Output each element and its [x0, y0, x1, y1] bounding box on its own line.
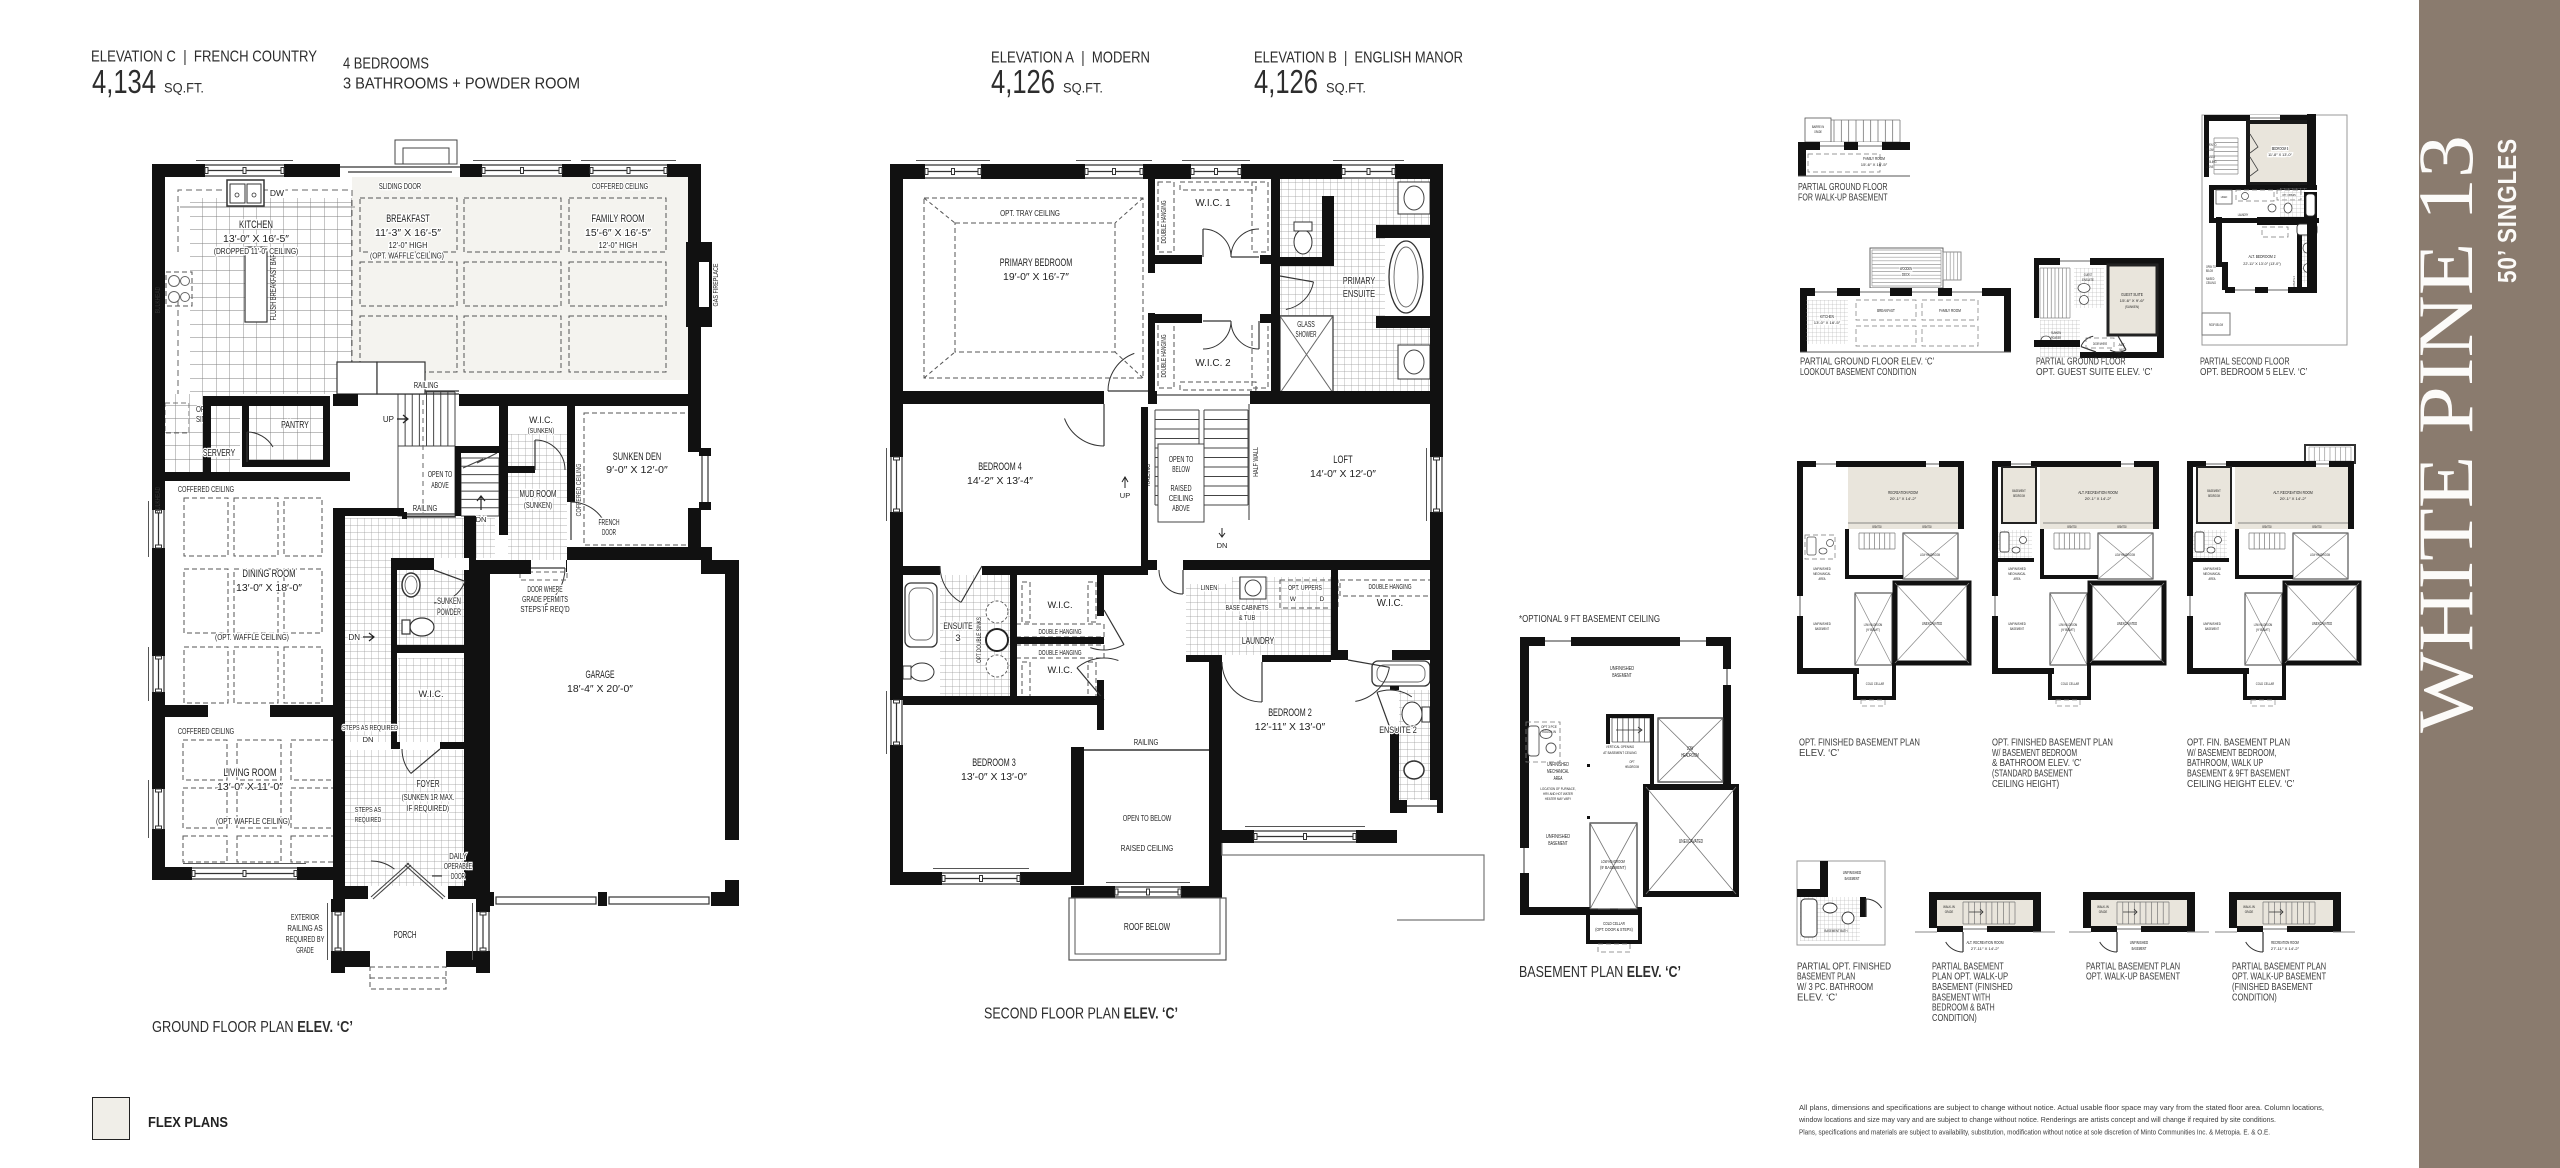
svg-text:& TUB: & TUB [1239, 613, 1256, 622]
svg-text:DW: DW [270, 188, 284, 198]
svg-text:FOYER: FOYER [416, 778, 439, 790]
svg-text:18′-4″ X 20′-0″: 18′-4″ X 20′-0″ [567, 684, 633, 695]
svg-text:SECOND FLOOR PLAN ELEV. ‘C’: SECOND FLOOR PLAN ELEV. ‘C’ [984, 1006, 1178, 1023]
svg-text:LAUNDRY: LAUNDRY [2238, 213, 2249, 217]
svg-text:RAILING AS: RAILING AS [287, 924, 322, 933]
svg-text:BASEMENT: BASEMENT [2010, 626, 2024, 631]
svg-text:13′-0″ X 13′-0″: 13′-0″ X 13′-0″ [961, 772, 1027, 783]
svg-text:UNFINISHED: UNFINISHED [1843, 870, 1862, 875]
svg-text:ALT. RECREATION ROOM: ALT. RECREATION ROOM [1967, 940, 2004, 945]
svg-text:DOUBLE HANGING: DOUBLE HANGING [1161, 200, 1168, 243]
svg-text:UNFINISHED: UNFINISHED [1547, 762, 1569, 768]
svg-text:ALT. BEDROOM 2: ALT. BEDROOM 2 [2248, 254, 2276, 259]
svg-text:COLD CELLAR: COLD CELLAR [1866, 682, 1885, 686]
svg-text:HEADROOM: HEADROOM [1625, 764, 1639, 769]
svg-text:FOR WALK-UP BASEMENT: FOR WALK-UP BASEMENT [1798, 192, 1888, 203]
svg-text:GLASS: GLASS [1297, 320, 1315, 329]
svg-text:BASEMENT PLAN ELEV. ‘C’: BASEMENT PLAN ELEV. ‘C’ [1519, 964, 1681, 981]
svg-text:DECK: DECK [1902, 272, 1910, 277]
svg-text:WALK-IN: WALK-IN [2243, 905, 2255, 909]
svg-text:W.I.C.: W.I.C. [1047, 665, 1072, 676]
svg-text:POWDER: POWDER [437, 607, 461, 617]
svg-text:CEILING: CEILING [1169, 494, 1194, 503]
svg-text:DN: DN [348, 633, 360, 642]
svg-text:20′-1″ X 14′-2″: 20′-1″ X 14′-2″ [2085, 496, 2112, 501]
svg-text:COLD CELLAR: COLD CELLAR [1603, 921, 1625, 926]
svg-text:LINEN: LINEN [1201, 583, 1218, 592]
svg-text:BASEMENT: BASEMENT [2012, 489, 2026, 493]
svg-text:LOW HEADROOM: LOW HEADROOM [1601, 859, 1625, 864]
svg-text:ENSUITE 2: ENSUITE 2 [1379, 725, 1417, 736]
svg-text:BSMT30: BSMT30 [2262, 525, 2271, 529]
svg-text:GUEST: GUEST [2084, 273, 2093, 277]
svg-text:BELOW: BELOW [2206, 148, 2214, 152]
svg-text:*OPTIONAL 9 FT BASEMENT CEILIN: *OPTIONAL 9 FT BASEMENT CEILING [1519, 614, 1660, 625]
svg-text:SQ.FT.: SQ.FT. [164, 81, 204, 96]
svg-text:BEDROOM: BEDROOM [2208, 494, 2220, 498]
svg-text:HEATER MAY VARY: HEATER MAY VARY [1545, 796, 1572, 801]
svg-text:FLEX PLANS: FLEX PLANS [148, 1114, 228, 1131]
svg-text:LOW HEADROOM: LOW HEADROOM [2310, 553, 2330, 557]
svg-text:BASEMENT: BASEMENT [2205, 626, 2219, 631]
svg-text:RAISED: RAISED [2206, 155, 2215, 159]
svg-text:AREA: AREA [1554, 776, 1563, 782]
svg-text:BSMT30: BSMT30 [2067, 525, 2076, 529]
svg-text:DOOR WHERE: DOOR WHERE [2093, 342, 2107, 346]
svg-text:HEADROOM: HEADROOM [1681, 753, 1699, 759]
svg-text:LINEN: LINEN [2221, 195, 2228, 199]
svg-text:(SUNKEN): (SUNKEN) [528, 426, 555, 435]
svg-text:KITCHEN: KITCHEN [1820, 314, 1834, 319]
svg-text:EXTERIOR: EXTERIOR [291, 913, 319, 922]
svg-text:DOUBLE HANGING: DOUBLE HANGING [1368, 584, 1411, 591]
svg-text:OPEN TO: OPEN TO [1169, 455, 1194, 464]
svg-text:GROUND FLOOR PLAN ELEV. ‘C’: GROUND FLOOR PLAN ELEV. ‘C’ [152, 1019, 353, 1036]
svg-text:DN: DN [363, 735, 374, 744]
svg-text:AREA: AREA [2209, 576, 2216, 581]
svg-text:13′-0″ X 16′-5″: 13′-0″ X 16′-5″ [1814, 320, 1841, 325]
svg-text:W.I.C. 1: W.I.C. 1 [1195, 198, 1231, 209]
svg-text:REQUIRED BY: REQUIRED BY [286, 935, 325, 944]
svg-text:ROOF BELOW: ROOF BELOW [2209, 323, 2223, 327]
svg-text:(OPT. DOOR & STEPS): (OPT. DOOR & STEPS) [1595, 927, 1633, 932]
svg-text:DN: DN [476, 515, 487, 524]
svg-text:BEDROOM 5: BEDROOM 5 [2272, 146, 2289, 151]
svg-text:ABOVE: ABOVE [2206, 165, 2214, 169]
svg-text:20′-1″ X 14′-2″: 20′-1″ X 14′-2″ [1890, 496, 1917, 501]
svg-text:RECREATION ROOM: RECREATION ROOM [1888, 490, 1918, 495]
svg-text:WALK-IN: WALK-IN [2097, 905, 2109, 909]
svg-text:15′-6″ X 9′-6″: 15′-6″ X 9′-6″ [2120, 298, 2145, 303]
svg-text:LIVING ROOM: LIVING ROOM [223, 767, 276, 779]
svg-text:BSMT30: BSMT30 [2117, 525, 2126, 529]
svg-text:BEDROOM 2: BEDROOM 2 [1268, 707, 1312, 719]
svg-text:27′-11″ X 14′-2″: 27′-11″ X 14′-2″ [2271, 946, 2300, 951]
svg-text:(OPT. WAFFLE CEILING): (OPT. WAFFLE CEILING) [216, 817, 290, 826]
svg-text:GRADE: GRADE [2099, 910, 2108, 914]
svg-text:Plans, specifications and mate: Plans, specifications and materials are … [1799, 1127, 2270, 1136]
svg-text:W.I.C.: W.I.C. [1377, 598, 1403, 609]
svg-text:ENSUITE 2: ENSUITE 2 [2292, 276, 2296, 288]
svg-text:4,126: 4,126 [1254, 63, 1318, 100]
svg-text:RECREATION ROOM: RECREATION ROOM [2271, 940, 2299, 945]
svg-text:27′-11″ X 14′-2″: 27′-11″ X 14′-2″ [1971, 946, 2000, 951]
svg-text:STEPS AS: STEPS AS [355, 805, 381, 814]
svg-text:All plans, dimensions and spec: All plans, dimensions and specifications… [1799, 1103, 2324, 1112]
svg-text:BEDROOM 3: BEDROOM 3 [972, 757, 1016, 769]
svg-text:SUNKEN: SUNKEN [437, 596, 461, 606]
svg-text:9′-0″ X 12′-0″: 9′-0″ X 12′-0″ [606, 465, 668, 476]
svg-text:GRADE: GRADE [1814, 130, 1822, 134]
svg-text:AT BASEMENT CEILING: AT BASEMENT CEILING [1603, 750, 1636, 755]
svg-text:UNFINISHED: UNFINISHED [1610, 666, 1634, 672]
svg-text:W.I.C.: W.I.C. [529, 415, 553, 425]
svg-text:BEDROOM 4: BEDROOM 4 [978, 461, 1022, 473]
svg-text:15′-6″ X 16′-5″: 15′-6″ X 16′-5″ [585, 228, 651, 239]
svg-text:UNEXCAVATED: UNEXCAVATED [1922, 621, 1942, 626]
svg-text:11′-8″ X 13′-0″: 11′-8″ X 13′-0″ [2268, 153, 2293, 157]
svg-text:14′-2″ X 13′-4″: 14′-2″ X 13′-4″ [967, 476, 1033, 487]
svg-text:W.I.C. 2: W.I.C. 2 [1195, 358, 1231, 369]
svg-text:(DROPPED 11′-0″ CEILING): (DROPPED 11′-0″ CEILING) [214, 247, 299, 256]
svg-text:PORCH: PORCH [393, 929, 416, 941]
svg-text:BELOW: BELOW [2206, 269, 2213, 273]
svg-text:OPEN TO: OPEN TO [428, 470, 453, 479]
svg-text:50’ SINGLES: 50’ SINGLES [2492, 138, 2522, 283]
svg-text:DINING ROOM: DINING ROOM [242, 568, 295, 580]
svg-text:FAMILY ROOM: FAMILY ROOM [591, 213, 644, 225]
svg-text:BASEMENT BATH: BASEMENT BATH [1825, 928, 1848, 933]
svg-text:OPT. WALK-UP BASEMENT: OPT. WALK-UP BASEMENT [2086, 972, 2180, 983]
svg-text:ELEV. ‘C’: ELEV. ‘C’ [1799, 748, 1839, 759]
svg-text:12′-0″ HIGH: 12′-0″ HIGH [389, 241, 428, 250]
svg-text:(SUNKEN 1R MAX.: (SUNKEN 1R MAX. [402, 793, 455, 802]
svg-text:LOOKOUT BASEMENT CONDITION: LOOKOUT BASEMENT CONDITION [1800, 367, 1916, 378]
svg-text:SERVERY: SERVERY [203, 447, 235, 459]
svg-text:DOUBLE HANGING: DOUBLE HANGING [1161, 334, 1168, 377]
svg-text:COLD CELLAR: COLD CELLAR [2061, 682, 2080, 686]
svg-text:RAISED: RAISED [1170, 484, 1191, 493]
svg-text:MECHANICAL: MECHANICAL [1547, 769, 1569, 775]
svg-text:W.I.C.: W.I.C. [1047, 600, 1072, 611]
svg-text:UNEXCAVATED: UNEXCAVATED [1679, 839, 1703, 845]
svg-text:12′-0″ HIGH: 12′-0″ HIGH [599, 241, 638, 250]
svg-text:OPT DOUBLE SINKS: OPT DOUBLE SINKS [976, 617, 983, 663]
svg-text:HALF WALL: HALF WALL [1251, 447, 1260, 477]
svg-text:DN: DN [1217, 541, 1228, 550]
svg-text:ENSUITE: ENSUITE [1343, 288, 1375, 300]
svg-text:REQUIRED: REQUIRED [355, 815, 382, 824]
svg-text:COFFERED CEILING: COFFERED CEILING [178, 727, 234, 736]
svg-text:DOOR: DOOR [451, 872, 465, 881]
svg-text:AREA: AREA [1819, 576, 1826, 581]
svg-text:CEILING: CEILING [2206, 281, 2216, 285]
svg-text:UNEXCAVATED: UNEXCAVATED [2312, 621, 2332, 626]
svg-text:LOW HEADROOM: LOW HEADROOM [1864, 623, 1883, 627]
svg-text:(9′ BSMT): (9′ BSMT) [2256, 628, 2270, 632]
svg-text:OPERABLE: OPERABLE [444, 862, 472, 871]
svg-text:ENSUITE: ENSUITE [943, 621, 972, 632]
svg-text:4 BEDROOMS: 4 BEDROOMS [343, 56, 429, 73]
svg-text:DAILY: DAILY [449, 852, 467, 861]
svg-text:POWDER: POWDER [2051, 336, 2061, 340]
svg-text:GRADE PERMITS: GRADE PERMITS [522, 595, 568, 604]
svg-text:FAMILY ROOM: FAMILY ROOM [1863, 156, 1885, 161]
svg-text:ABOVE: ABOVE [431, 481, 449, 490]
svg-text:BULKHEAD: BULKHEAD [153, 286, 162, 313]
svg-text:UP: UP [1120, 491, 1130, 500]
svg-text:PRIMARY BEDROOM: PRIMARY BEDROOM [1000, 257, 1073, 269]
svg-text:BREAKFAST: BREAKFAST [386, 213, 430, 225]
svg-text:LOW HEADROOM: LOW HEADROOM [2059, 623, 2078, 627]
svg-text:19′-0″ X 16′-7″: 19′-0″ X 16′-7″ [1003, 272, 1069, 283]
svg-text:ELEV. ‘C’: ELEV. ‘C’ [1797, 992, 1837, 1003]
svg-text:FRENCH: FRENCH [598, 518, 619, 527]
svg-text:OPEN TO: OPEN TO [2206, 143, 2217, 147]
svg-text:14′-0″ X 12′-0″: 14′-0″ X 12′-0″ [1310, 469, 1376, 480]
svg-text:LOFT: LOFT [1333, 454, 1353, 466]
svg-text:BASEMENT: BASEMENT [2207, 489, 2221, 493]
svg-text:ABOVE: ABOVE [1172, 504, 1190, 513]
svg-text:W.I.C.: W.I.C. [418, 689, 443, 700]
svg-text:KITCHEN: KITCHEN [239, 219, 273, 231]
svg-text:3 BATHROOMS + POWDER ROOM: 3 BATHROOMS + POWDER ROOM [343, 76, 580, 93]
svg-text:WHITE PINE 13: WHITE PINE 13 [2402, 135, 2489, 733]
svg-text:BASE CABINETS: BASE CABINETS [1226, 603, 1269, 612]
svg-text:12′-11″ X 13′-0″: 12′-11″ X 13′-0″ [1255, 722, 1326, 733]
svg-text:DOOR: DOOR [602, 528, 616, 537]
svg-text:LOW: LOW [1687, 746, 1694, 752]
svg-text:SQ.FT.: SQ.FT. [1326, 81, 1366, 96]
svg-text:GRADE: GRADE [296, 946, 314, 955]
svg-text:SUNKEN: SUNKEN [2051, 331, 2061, 335]
svg-text:BSMT30: BSMT30 [1922, 525, 1931, 529]
svg-text:(SUNKEN): (SUNKEN) [2125, 304, 2140, 309]
svg-text:4,134: 4,134 [92, 63, 156, 100]
svg-text:11′-3″ X 16′-5″: 11′-3″ X 16′-5″ [375, 228, 441, 239]
svg-text:WALK-IN: WALK-IN [1943, 905, 1955, 909]
svg-text:20′-1″ X 14′-2″: 20′-1″ X 14′-2″ [2280, 496, 2307, 501]
svg-text:BASEMENT: BASEMENT [1612, 673, 1632, 679]
svg-text:OPT. BEDROOM 5 ELEV. ‘C’: OPT. BEDROOM 5 ELEV. ‘C’ [2200, 367, 2308, 378]
svg-text:BASEMENT: BASEMENT [1845, 876, 1860, 881]
svg-text:(9′ BSMT): (9′ BSMT) [1866, 628, 1880, 632]
svg-text:CONDITION): CONDITION) [1932, 1013, 1977, 1024]
svg-text:GAS FIREPLACE: GAS FIREPLACE [711, 264, 720, 307]
svg-text:RAILING: RAILING [414, 381, 439, 390]
svg-text:D: D [1320, 596, 1325, 603]
svg-text:(SUNKEN): (SUNKEN) [524, 501, 552, 510]
svg-text:BSMT30: BSMT30 [1872, 525, 1881, 529]
svg-text:OPT. GUEST SUITE ELEV. ‘C’: OPT. GUEST SUITE ELEV. ‘C’ [2036, 367, 2152, 378]
svg-text:BULKHEAD: BULKHEAD [153, 486, 162, 513]
svg-text:GRADE: GRADE [1945, 910, 1954, 914]
svg-text:STEPS IF REQ’D: STEPS IF REQ’D [520, 605, 569, 614]
svg-text:CONDITION): CONDITION) [2232, 992, 2277, 1003]
svg-text:(OPT. WAFFLE CEILING): (OPT. WAFFLE CEILING) [370, 252, 444, 261]
svg-text:UNFINISHED: UNFINISHED [2130, 940, 2149, 945]
svg-text:RAILING: RAILING [413, 504, 438, 513]
svg-text:FAMILY ROOM: FAMILY ROOM [1939, 308, 1961, 313]
svg-text:LOW HEADROOM: LOW HEADROOM [2254, 623, 2273, 627]
svg-text:ROOF BELOW: ROOF BELOW [1124, 921, 1170, 933]
svg-text:SQ.FT.: SQ.FT. [1063, 81, 1103, 96]
svg-text:13′-0″ X 18′-0″: 13′-0″ X 18′-0″ [236, 583, 302, 594]
svg-text:STEPS AS REQUIRED: STEPS AS REQUIRED [342, 723, 399, 732]
svg-text:COFFERED CEILING: COFFERED CEILING [574, 463, 583, 516]
svg-text:VERTICAL OPENING: VERTICAL OPENING [1606, 744, 1634, 749]
svg-text:UNFINISHED: UNFINISHED [1546, 834, 1570, 840]
svg-text:UNEXCAVATED: UNEXCAVATED [2117, 621, 2137, 626]
svg-text:RAILING: RAILING [1134, 738, 1159, 747]
svg-text:OPT. UPPERS: OPT. UPPERS [1288, 585, 1322, 592]
svg-text:MUD ROOM: MUD ROOM [520, 488, 557, 500]
svg-text:(9′ BSMT): (9′ BSMT) [2061, 628, 2075, 632]
svg-text:13′-0″ X 16′-5″: 13′-0″ X 16′-5″ [223, 234, 289, 245]
svg-text:ALT. RECREATION ROOM: ALT. RECREATION ROOM [2273, 490, 2313, 495]
svg-text:13′-0″ X 11′-0″: 13′-0″ X 11′-0″ [217, 782, 283, 793]
svg-text:OPT. TRAY CEILING: OPT. TRAY CEILING [1000, 209, 1060, 218]
svg-text:3: 3 [955, 633, 960, 644]
svg-text:22′-11″ X 13′-0″ (13′-0″): 22′-11″ X 13′-0″ (13′-0″) [2243, 262, 2280, 266]
svg-text:DOOR WHERE: DOOR WHERE [527, 585, 562, 594]
svg-text:GARAGE: GARAGE [586, 669, 615, 681]
svg-text:LOW HEADROOM: LOW HEADROOM [1920, 553, 1940, 557]
svg-text:LAUNDRY: LAUNDRY [1242, 635, 1274, 647]
svg-text:ROUGH-IN: ROUGH-IN [1542, 729, 1556, 734]
svg-text:RAISED CEILING: RAISED CEILING [1121, 843, 1173, 853]
svg-text:BREAKFAST: BREAKFAST [1877, 308, 1895, 313]
svg-text:ENSUITE: ENSUITE [2082, 278, 2094, 282]
svg-text:GRADE: GRADE [2245, 910, 2254, 914]
svg-text:CEILING HEIGHT ELEV. ‘C’: CEILING HEIGHT ELEV. ‘C’ [2187, 779, 2295, 790]
svg-text:FLUSH BREAKFAST BAR: FLUSH BREAKFAST BAR [269, 253, 278, 320]
svg-text:BSMT30: BSMT30 [2312, 525, 2321, 529]
svg-text:GUEST SUITE: GUEST SUITE [2121, 292, 2143, 297]
svg-text:CEILING: CEILING [2206, 160, 2217, 164]
svg-text:COFFERED CEILING: COFFERED CEILING [178, 485, 234, 494]
svg-text:ENSUITE 3: ENSUITE 3 [2288, 183, 2300, 187]
svg-text:BASEMENT: BASEMENT [1815, 626, 1829, 631]
svg-text:DOUBLE HANGING: DOUBLE HANGING [1038, 650, 1081, 657]
svg-text:BELOW: BELOW [1172, 465, 1190, 474]
svg-text:DOUBLE HANGING: DOUBLE HANGING [1038, 629, 1081, 636]
svg-text:BARRE IN: BARRE IN [1812, 125, 1825, 129]
svg-text:BASEMENT: BASEMENT [2132, 946, 2147, 951]
svg-text:SUNKEN DEN: SUNKEN DEN [613, 451, 661, 463]
svg-text:COLD CELLAR: COLD CELLAR [2256, 682, 2275, 686]
svg-text:WOODEN: WOODEN [1900, 266, 1912, 271]
svg-text:CEILING HEIGHT): CEILING HEIGHT) [1992, 779, 2059, 790]
svg-text:PRIMARY: PRIMARY [1343, 275, 1375, 287]
svg-text:4,126: 4,126 [991, 63, 1055, 100]
svg-text:OPEN TO BELOW: OPEN TO BELOW [1123, 813, 1172, 823]
svg-text:ALT. RECREATION ROOM: ALT. RECREATION ROOM [2078, 490, 2118, 495]
svg-text:15′-6″ X 16′-5″: 15′-6″ X 16′-5″ [1861, 162, 1888, 167]
svg-text:COFFERED CEILING: COFFERED CEILING [592, 182, 648, 191]
svg-text:LOW HEADROOM: LOW HEADROOM [2115, 553, 2135, 557]
svg-text:SHOWER: SHOWER [1295, 330, 1316, 339]
svg-text:AREA: AREA [2014, 576, 2021, 581]
svg-text:PANTRY: PANTRY [281, 419, 309, 431]
svg-text:BASEMENT: BASEMENT [1548, 841, 1568, 847]
svg-text:(9′ BASEMENT): (9′ BASEMENT) [1600, 865, 1626, 870]
svg-text:W: W [1290, 596, 1297, 603]
svg-text:(OPT. WAFFLE CEILING): (OPT. WAFFLE CEILING) [215, 633, 289, 642]
svg-text:IF REQUIRED): IF REQUIRED) [407, 804, 449, 813]
svg-text:UP: UP [383, 415, 394, 424]
svg-text:SLIDING DOOR: SLIDING DOOR [379, 182, 421, 191]
svg-text:BEDROOM: BEDROOM [2013, 494, 2025, 498]
svg-text:window locations and size may: window locations and size may vary and a… [1798, 1115, 2276, 1124]
